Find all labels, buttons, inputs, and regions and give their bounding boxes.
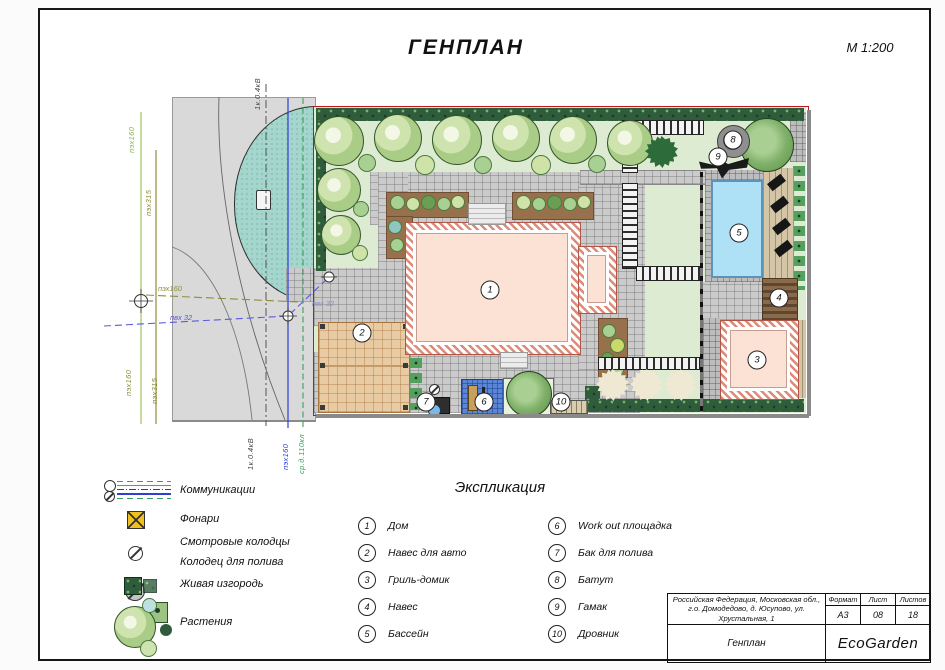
marker-pool: 5 [730,224,749,243]
shrub-icon [390,195,405,210]
explication-row: 5 Бассейн [358,620,466,647]
drawing-name: Генплан [668,625,826,663]
shrub-icon [474,156,492,174]
shrub-icon [415,155,435,175]
legend-label: Растения [180,616,232,628]
pool-grill-paving [702,282,766,320]
legend-label: Живая изгородь [180,578,264,590]
format-label: Формат [826,594,861,606]
legend-label: Смотровые колодцы [180,536,290,548]
explication-number: 8 [548,571,566,589]
hedge-bottom [585,399,804,412]
porch-north [468,203,506,225]
explication-number: 10 [548,625,566,643]
company-name: EcoGarden [826,625,931,663]
hedge-squares-east [793,166,805,290]
legend-label: Коммуникации [180,484,255,496]
shrub-icon [532,197,546,211]
legend-label: Колодец для полива [180,556,283,568]
shrub-icon [390,238,404,252]
hedge-icon [124,577,142,595]
explication-row: 3 Гриль-домик [358,566,466,593]
utility-label: пэх160 [124,352,133,396]
explication-number: 3 [358,571,376,589]
title-block: Российская Федерация, Московская обл., г… [667,593,931,661]
southwest-paving [314,268,408,326]
sheets-label: Листов [896,594,931,606]
hedge-icon [143,579,157,593]
tree-icon [607,120,653,166]
utility-label: пэх315 [144,172,153,216]
shrub-icon [353,201,369,217]
sheet-label: Лист [861,594,896,606]
explication-row: 7 Бак для полива [548,539,672,566]
marker-house: 1 [481,281,500,300]
house-annex [578,246,617,314]
shrub-icon [451,195,465,209]
carport-divider [319,365,409,367]
shrub-icon [531,155,551,175]
lantern-icon [127,511,145,529]
grill-tile-strip [703,318,720,402]
marker-woodshed: 10 [552,393,571,412]
tree-icon [374,114,422,162]
explication-label: Гамак [578,601,607,613]
shrub-icon [358,154,376,172]
explication-col1: 1 Дом 2 Навес для авто 3 Гриль-домик 4 Н… [358,512,466,647]
utility-label: 1к.0.4кВ [246,424,255,470]
explication-number: 5 [358,625,376,643]
explication-title: Экспликация [420,479,580,496]
marker-canopy: 4 [770,289,789,308]
boundary-shadow-right [807,110,811,416]
explication-number: 9 [548,598,566,616]
shrub-icon [563,197,577,211]
explication-row: 10 Дровник [548,620,672,647]
tree-icon [314,116,364,166]
shrub-icon [388,220,402,234]
explication-label: Батут [578,574,613,586]
shrub-icon [588,155,606,173]
explication-number: 4 [358,598,376,616]
explication-label: Бассейн [388,628,429,640]
sheets-value: 18 [896,606,931,625]
sheet-value: 08 [861,606,896,625]
utility-label: ср.д.110кл [297,424,306,474]
utility-label: пэх160 [127,113,136,153]
explication-label: Дровник [578,628,619,640]
figure-icon [256,190,271,210]
tree-icon [492,114,540,162]
utility-label: пэх315 [150,360,159,404]
explication-number: 1 [358,517,376,535]
boardwalk [636,266,702,281]
explication-label: Навес для авто [388,547,466,559]
shrub-icon [602,324,616,338]
explication-row: 1 Дом [358,512,466,539]
explication-number: 2 [358,544,376,562]
inner-fence [700,172,703,412]
shrub-icon [516,195,531,210]
manhole-icon [128,546,143,561]
gate-paving [286,268,314,302]
boardwalk [598,357,700,370]
shrub-icon [352,245,368,261]
boardwalk [622,183,638,269]
legend: Коммуникации Фонари Смотровые колодцы Ко… [100,476,380,656]
explication-col2: 6 Work out площадка 7 Бак для полива 8 Б… [548,512,672,647]
explication-row: 4 Навес [358,593,466,620]
drawing-sheet: ГЕНПЛАН М 1:200 [0,0,945,670]
explication-label: Бак для полива [578,547,653,559]
legend-label: Фонари [180,513,219,525]
marker-water-tank: 7 [417,393,436,412]
utility-label: пвх 32 [170,313,192,322]
utility-label: пэх160 [281,424,290,470]
utility-label: пэх160 [158,284,182,293]
marker-grill-house: 3 [748,351,767,370]
utility-label: 1к.0.4кВ [253,80,262,110]
marker-hammock: 9 [709,148,728,167]
plants-icon [112,598,176,654]
explication-label: Work out площадка [578,520,672,532]
tree-icon [432,115,482,165]
title-block-address: Российская Федерация, Московская обл., г… [668,594,826,625]
tree-icon [506,371,552,417]
marker-trampoline: 8 [724,131,743,150]
shrub-icon [421,195,436,210]
boundary-shadow-bottom [316,414,809,418]
shrub-icon [547,195,562,210]
hedge-bottom-step [585,386,600,400]
porch-south [500,352,528,369]
explication-row: 8 Батут [548,566,672,593]
manhole-icon [104,491,115,502]
page-title: ГЕНПЛАН [386,36,546,60]
explication-row: 9 Гамак [548,593,672,620]
explication-row: 2 Навес для авто [358,539,466,566]
shrub-icon [610,338,625,353]
explication-number: 7 [548,544,566,562]
marker-workout: 6 [475,393,494,412]
shrub-icon [406,197,420,211]
explication-label: Дом [388,520,408,532]
marker-carport: 2 [353,324,372,343]
scale-label: М 1:200 [820,40,920,55]
explication-label: Навес [388,601,418,613]
utility-label: пвх 32 [312,299,334,308]
shrub-icon [577,195,591,209]
communications-swatch-icon [117,479,171,502]
format-value: А3 [826,606,861,625]
shrub-icon [437,197,451,211]
explication-row: 6 Work out площадка [548,512,672,539]
explication-label: Гриль-домик [388,574,450,586]
explication-number: 6 [548,517,566,535]
